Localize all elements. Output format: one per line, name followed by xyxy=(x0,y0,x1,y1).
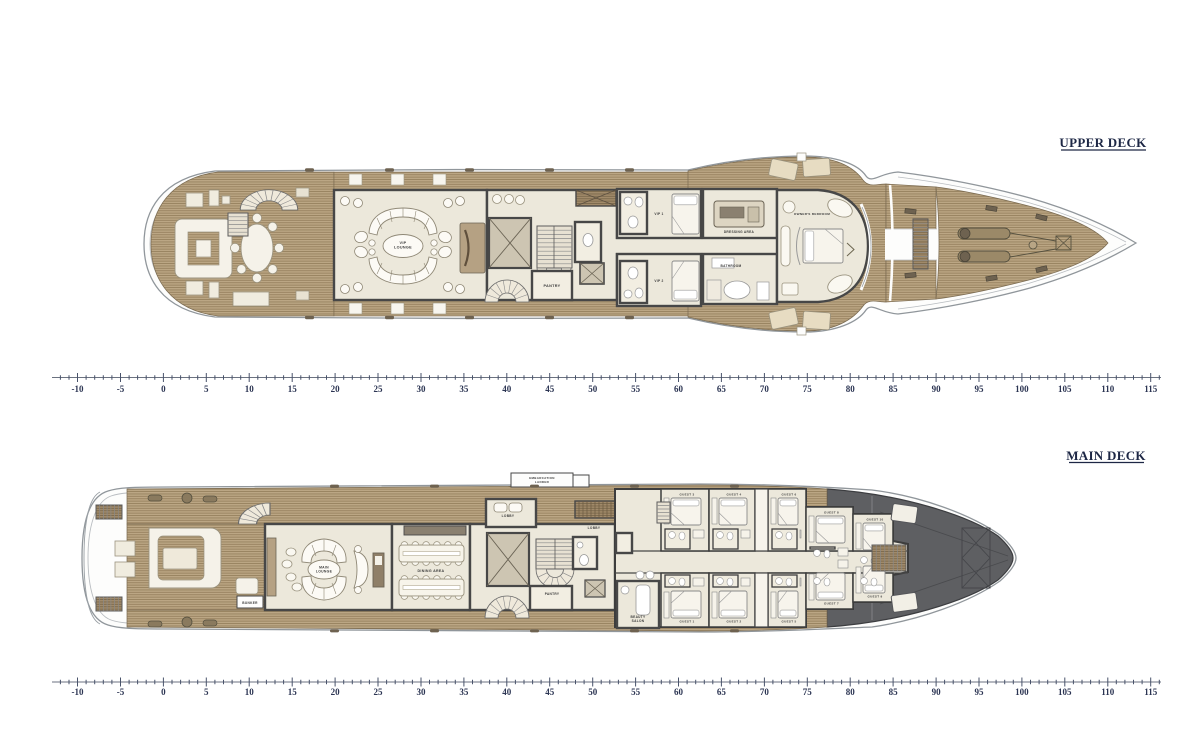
svg-text:10: 10 xyxy=(245,687,255,697)
svg-text:GUEST 1: GUEST 1 xyxy=(680,620,695,624)
svg-text:BATHROOM: BATHROOM xyxy=(721,264,742,268)
svg-text:105: 105 xyxy=(1058,384,1072,394)
svg-text:75: 75 xyxy=(803,384,813,394)
svg-text:75: 75 xyxy=(803,687,813,697)
svg-text:GUEST 5: GUEST 5 xyxy=(782,620,797,624)
svg-text:LOUNGE: LOUNGE xyxy=(316,570,333,574)
svg-text:70: 70 xyxy=(760,384,770,394)
svg-text:-5: -5 xyxy=(117,687,125,697)
svg-text:VIP: VIP xyxy=(399,241,406,245)
svg-text:DINING AREA: DINING AREA xyxy=(418,569,445,573)
svg-text:PANTRY: PANTRY xyxy=(545,592,560,596)
svg-text:30: 30 xyxy=(417,384,427,394)
svg-text:GUEST 3: GUEST 3 xyxy=(680,493,695,497)
svg-text:GUEST 6: GUEST 6 xyxy=(782,493,797,497)
svg-text:0: 0 xyxy=(161,384,166,394)
svg-text:0: 0 xyxy=(161,687,166,697)
svg-text:45: 45 xyxy=(545,384,555,394)
svg-text:MAIN DECK: MAIN DECK xyxy=(1066,448,1146,463)
svg-text:30: 30 xyxy=(417,687,427,697)
svg-text:35: 35 xyxy=(459,384,469,394)
svg-text:65: 65 xyxy=(717,687,727,697)
svg-text:LOBBY: LOBBY xyxy=(588,526,601,530)
svg-text:55: 55 xyxy=(631,384,641,394)
svg-text:80: 80 xyxy=(846,384,856,394)
svg-text:25: 25 xyxy=(374,687,384,697)
svg-text:25: 25 xyxy=(374,384,384,394)
svg-text:OWNER'S BEDROOM: OWNER'S BEDROOM xyxy=(794,212,830,216)
svg-text:95: 95 xyxy=(975,687,985,697)
svg-text:GUEST 10: GUEST 10 xyxy=(867,518,884,522)
svg-text:SALON: SALON xyxy=(632,619,645,623)
svg-text:85: 85 xyxy=(889,384,899,394)
svg-text:GUEST 9: GUEST 9 xyxy=(868,595,883,599)
svg-text:40: 40 xyxy=(502,687,512,697)
svg-text:15: 15 xyxy=(288,687,298,697)
svg-text:115: 115 xyxy=(1144,384,1158,394)
svg-text:65: 65 xyxy=(717,384,727,394)
svg-text:DRESSING AREA: DRESSING AREA xyxy=(724,230,755,234)
svg-text:45: 45 xyxy=(545,687,555,697)
svg-text:55: 55 xyxy=(631,687,641,697)
svg-text:VIP 1: VIP 1 xyxy=(654,212,663,216)
svg-text:95: 95 xyxy=(975,384,985,394)
svg-text:LADDER: LADDER xyxy=(535,480,550,484)
svg-text:5: 5 xyxy=(204,687,209,697)
svg-text:-10: -10 xyxy=(72,687,84,697)
svg-text:100: 100 xyxy=(1015,384,1029,394)
svg-text:110: 110 xyxy=(1101,687,1115,697)
svg-text:90: 90 xyxy=(932,687,942,697)
svg-text:15: 15 xyxy=(288,384,298,394)
svg-text:85: 85 xyxy=(889,687,899,697)
svg-text:GUEST 8: GUEST 8 xyxy=(824,511,839,515)
svg-text:50: 50 xyxy=(588,384,598,394)
svg-text:-10: -10 xyxy=(72,384,84,394)
svg-text:LOBBY: LOBBY xyxy=(502,514,515,518)
svg-text:115: 115 xyxy=(1144,687,1158,697)
svg-text:20: 20 xyxy=(331,384,341,394)
svg-text:GUEST 4: GUEST 4 xyxy=(727,493,742,497)
svg-text:10: 10 xyxy=(245,384,255,394)
svg-text:20: 20 xyxy=(331,687,341,697)
svg-text:VIP 2: VIP 2 xyxy=(654,279,663,283)
svg-text:5: 5 xyxy=(204,384,209,394)
svg-text:GUEST 2: GUEST 2 xyxy=(727,620,742,624)
svg-text:100: 100 xyxy=(1015,687,1029,697)
svg-text:80: 80 xyxy=(846,687,856,697)
svg-text:70: 70 xyxy=(760,687,770,697)
svg-text:60: 60 xyxy=(674,384,684,394)
svg-text:35: 35 xyxy=(459,687,469,697)
svg-text:105: 105 xyxy=(1058,687,1072,697)
svg-text:90: 90 xyxy=(932,384,942,394)
svg-text:PANTRY: PANTRY xyxy=(544,284,561,288)
svg-text:BUNKER: BUNKER xyxy=(242,601,258,605)
svg-text:GUEST 7: GUEST 7 xyxy=(824,602,839,606)
svg-text:UPPER DECK: UPPER DECK xyxy=(1059,135,1147,150)
svg-text:LOUNGE: LOUNGE xyxy=(394,246,412,250)
svg-text:60: 60 xyxy=(674,687,684,697)
svg-text:110: 110 xyxy=(1101,384,1115,394)
svg-text:-5: -5 xyxy=(117,384,125,394)
svg-text:50: 50 xyxy=(588,687,598,697)
svg-text:40: 40 xyxy=(502,384,512,394)
